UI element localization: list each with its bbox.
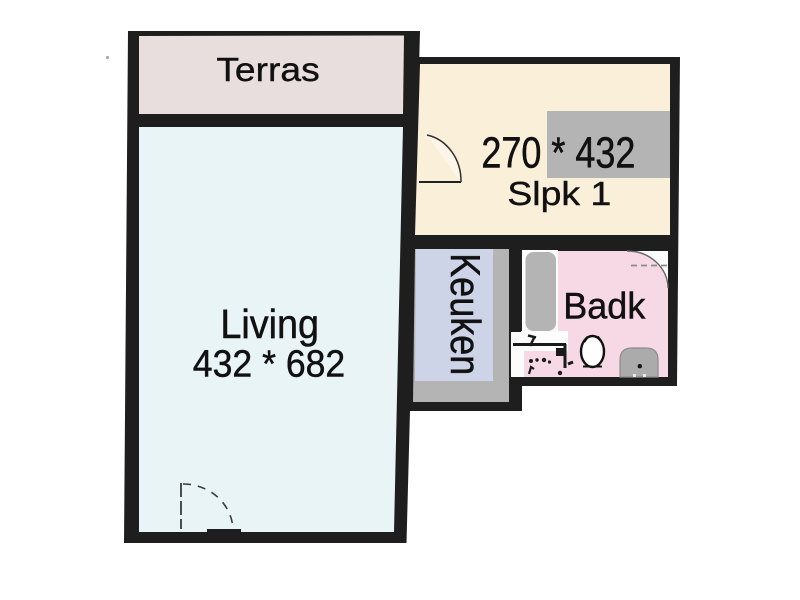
svg-text:Terras: Terras (216, 52, 319, 89)
svg-text:Slpk 1: Slpk 1 (507, 175, 611, 213)
svg-text:Badk: Badk (563, 285, 646, 327)
svg-text:432 * 682: 432 * 682 (193, 341, 345, 385)
svg-text:270 * 432: 270 * 432 (481, 128, 635, 177)
svg-text:Keuken: Keuken (441, 253, 487, 375)
